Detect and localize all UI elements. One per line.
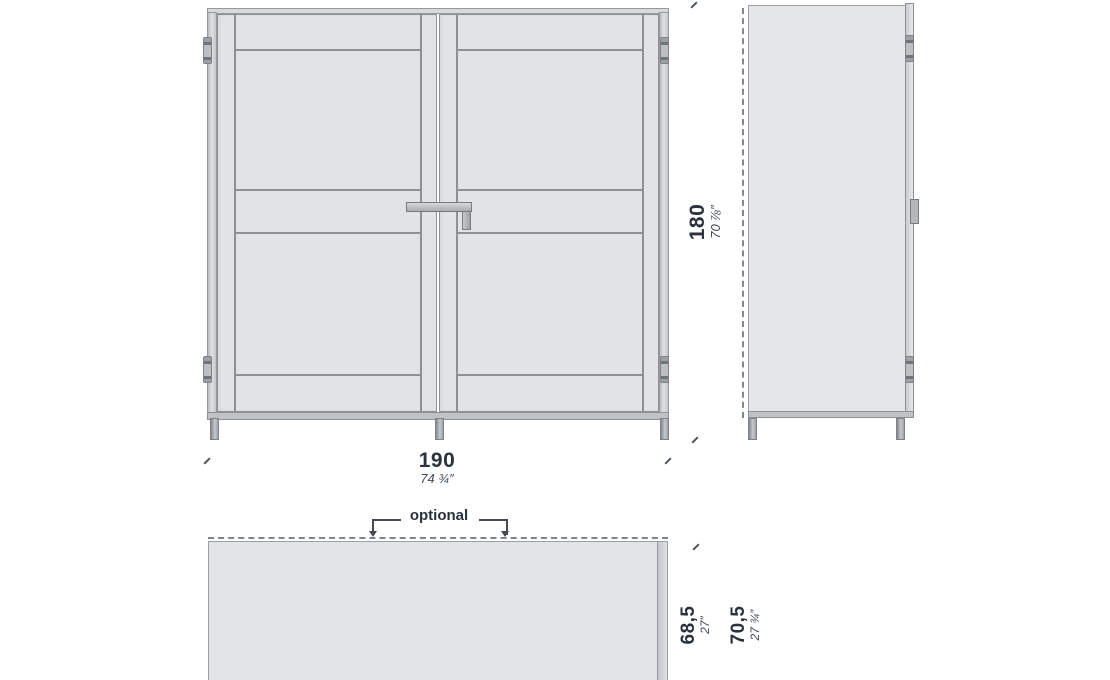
left-door — [217, 14, 437, 412]
dimension-tick — [203, 457, 210, 464]
door-stile-line — [456, 15, 458, 411]
hinge — [660, 37, 669, 64]
optional-label: optional — [398, 507, 480, 524]
dimension-tick — [692, 543, 699, 550]
door-rail-line — [234, 49, 420, 51]
height-cm-label: 180 — [687, 204, 708, 241]
depth-dimension: 68,5 27″ — [677, 593, 715, 657]
top-view-dashed-edge — [208, 537, 668, 539]
door-stile-line — [642, 15, 644, 411]
cabinet-leg — [748, 418, 757, 440]
width-cm-label: 190 — [419, 450, 456, 471]
front-view — [207, 8, 669, 418]
height-dimension: 180 70 ⅞″ — [684, 190, 726, 254]
cabinet-leg — [660, 418, 669, 440]
hinge — [905, 356, 914, 383]
depth-inch-label: 27″ — [698, 616, 712, 634]
door-stile-line — [234, 15, 236, 411]
side-view-handle — [910, 199, 919, 224]
width-inch-label: 74 ¾″ — [420, 471, 454, 487]
hinge — [905, 35, 914, 62]
hinge — [660, 356, 669, 383]
depth-total-cm-label: 70,5 — [729, 606, 748, 645]
top-view-panel — [208, 541, 668, 680]
hinge — [203, 37, 212, 64]
cabinet-leg — [435, 418, 444, 440]
top-view-right-edge — [657, 542, 667, 680]
cabinet-leg — [210, 418, 219, 440]
width-dimension: 190 74 ¾″ — [397, 450, 477, 487]
depth-total-inch-label: 27 ¾″ — [748, 610, 762, 641]
door-rail-line — [456, 232, 642, 234]
diagram-canvas: 190 74 ¾″ 180 70 ⅞″ optional 68,5 27″ 70… — [0, 0, 1110, 680]
hinge — [203, 356, 212, 383]
side-view-panel — [748, 5, 908, 418]
dimension-tick — [691, 436, 698, 443]
right-door — [439, 14, 659, 412]
side-view-bottom-edge — [748, 411, 914, 418]
depth-cm-label: 68,5 — [679, 606, 698, 645]
depth-total-dimension: 70,5 27 ¾″ — [726, 593, 766, 657]
optional-depth-dashed-line — [742, 8, 744, 418]
door-handle-latch — [462, 211, 471, 230]
door-rail-line — [456, 374, 642, 376]
door-stile-line — [420, 15, 422, 411]
door-rail-line — [456, 49, 642, 51]
height-inch-label: 70 ⅞″ — [708, 205, 724, 239]
dimension-tick — [664, 457, 671, 464]
dimension-tick — [690, 1, 697, 8]
door-rail-line — [456, 189, 642, 191]
door-rail-line — [234, 232, 420, 234]
cabinet-leg — [896, 418, 905, 440]
door-rail-line — [234, 374, 420, 376]
door-rail-line — [234, 189, 420, 191]
